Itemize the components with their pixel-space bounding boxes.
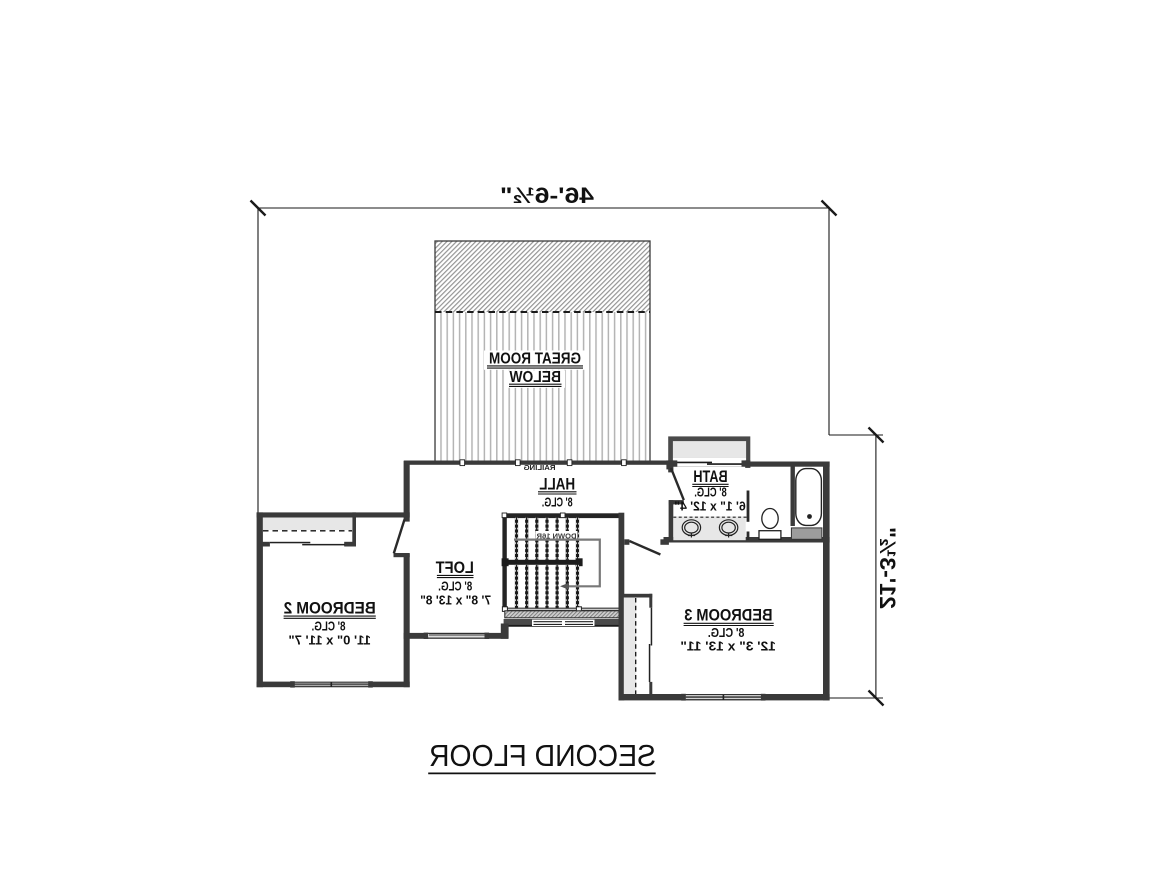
svg-text:BELOW: BELOW (509, 369, 561, 386)
svg-text:8' CLG.: 8' CLG. (708, 626, 745, 640)
svg-text:7' 8" x 13' 8": 7' 8" x 13' 8" (420, 594, 491, 608)
svg-text:8' CLG.: 8' CLG. (312, 620, 346, 634)
svg-text:21'-3½": 21'-3½" (875, 527, 900, 609)
svg-text:GREAT ROOM: GREAT ROOM (489, 351, 581, 368)
svg-text:11' 0" x 11' 7": 11' 0" x 11' 7" (288, 634, 370, 648)
svg-text:HALL: HALL (539, 475, 575, 494)
svg-text:12' 3" x 13' 11": 12' 3" x 13' 11" (680, 640, 776, 654)
svg-text:8' CLG.: 8' CLG. (438, 580, 472, 594)
svg-text:8' CLG.: 8' CLG. (542, 496, 573, 510)
svg-text:BATH: BATH (693, 467, 727, 486)
svg-text:46'-6½": 46'-6½" (500, 183, 594, 208)
svg-text:BEDROOM 2: BEDROOM 2 (284, 599, 376, 618)
svg-text:BEDROOM 3: BEDROOM 3 (684, 606, 772, 625)
svg-text:SECOND FLOOR: SECOND FLOOR (429, 738, 656, 773)
svg-text:8' CLG.: 8' CLG. (694, 486, 726, 500)
svg-text:RAILING: RAILING (523, 463, 555, 472)
svg-text:DOWN 16R: DOWN 16R (536, 531, 577, 540)
svg-text:6' 1" x 12' 4": 6' 1" x 12' 4" (674, 500, 745, 514)
svg-text:LOFT: LOFT (435, 558, 474, 577)
